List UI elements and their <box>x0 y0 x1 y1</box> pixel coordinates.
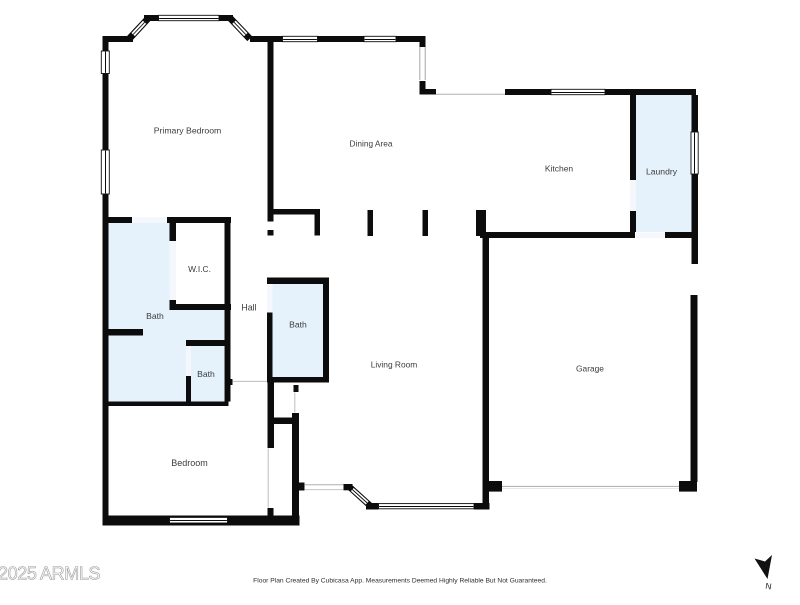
svg-text:Living Room: Living Room <box>371 360 418 370</box>
svg-text:Hall: Hall <box>241 303 256 313</box>
svg-text:Laundry: Laundry <box>646 167 678 177</box>
svg-text:Garage: Garage <box>576 363 604 373</box>
svg-text:Bedroom: Bedroom <box>171 458 208 468</box>
svg-text:Bath: Bath <box>197 369 215 379</box>
svg-text:Bath: Bath <box>289 320 307 330</box>
svg-text:W.I.C.: W.I.C. <box>188 264 211 274</box>
svg-text:Floor Plan Created By Cubicasa: Floor Plan Created By Cubicasa App. Meas… <box>253 578 547 585</box>
svg-text:Kitchen: Kitchen <box>545 164 574 174</box>
svg-text:Primary Bedroom: Primary Bedroom <box>154 126 222 136</box>
svg-text:2025 ARMLS: 2025 ARMLS <box>0 564 100 584</box>
svg-text:Bath: Bath <box>146 311 164 321</box>
svg-text:Dining Area: Dining Area <box>350 139 393 149</box>
